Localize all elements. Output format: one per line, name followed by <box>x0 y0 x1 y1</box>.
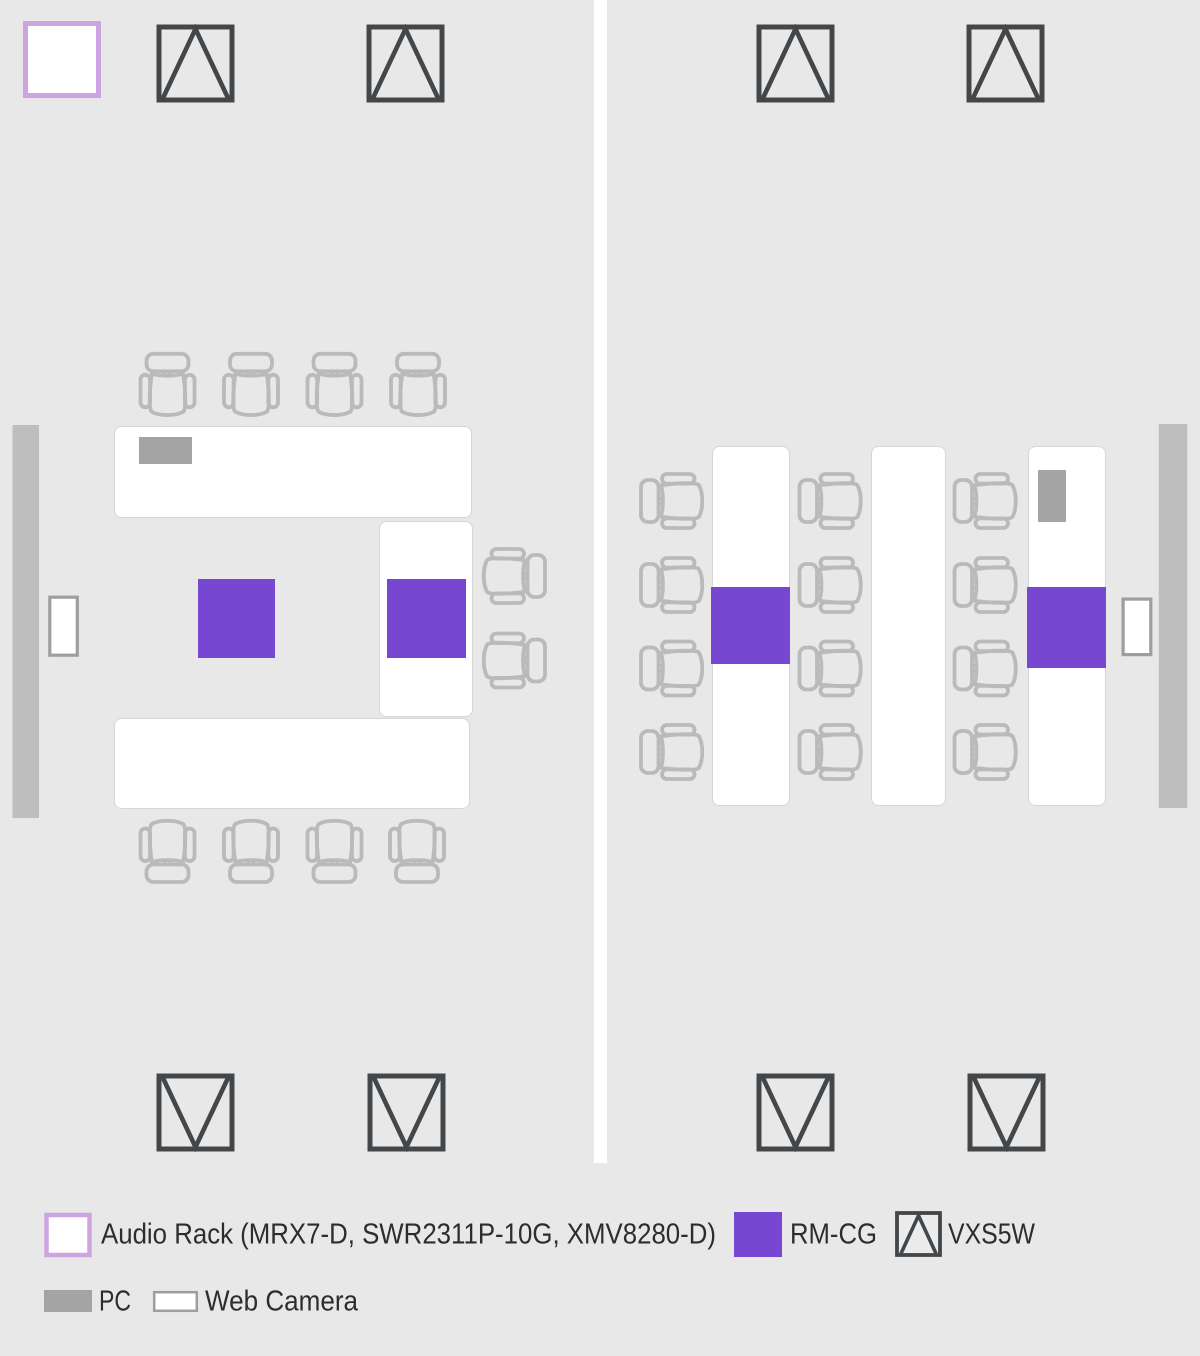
svg-text:VXS5W: VXS5W <box>948 1219 1035 1251</box>
svg-text:RM-CG: RM-CG <box>790 1219 877 1251</box>
svg-text:Audio Rack (MRX7-D, SWR2311P-1: Audio Rack (MRX7-D, SWR2311P-10G, XMV828… <box>101 1219 716 1251</box>
svg-text:Web Camera: Web Camera <box>205 1286 358 1318</box>
svg-text:PC: PC <box>99 1286 131 1318</box>
